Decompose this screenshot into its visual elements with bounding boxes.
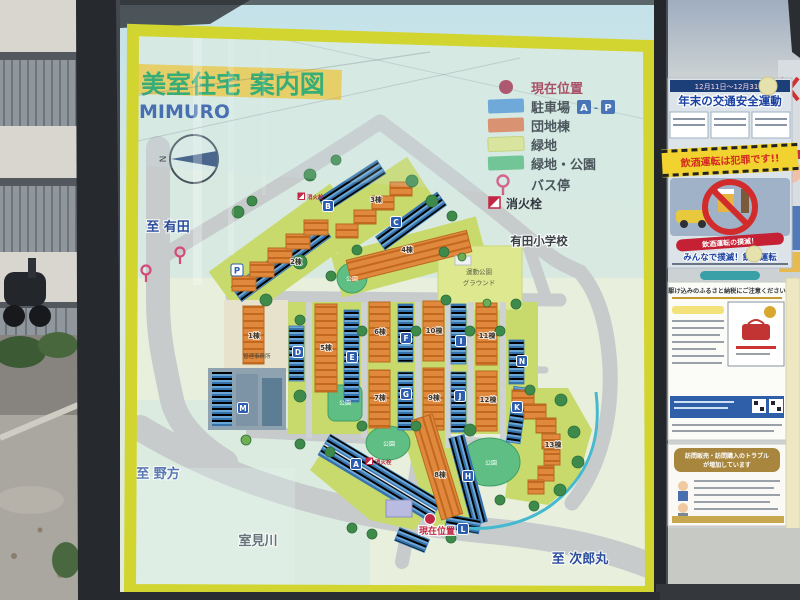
badge-c: C xyxy=(391,217,402,228)
building-1-label: 1棟 xyxy=(248,331,261,340)
poster-dates: 12月11日〜12月31日 xyxy=(695,83,766,91)
poster-title: 年末の交通安全運動 xyxy=(678,94,782,108)
frame-bottom xyxy=(120,592,660,600)
svg-text:消火栓: 消火栓 xyxy=(375,458,392,466)
balcony-row xyxy=(0,178,78,252)
badge-m: M xyxy=(238,403,249,414)
panel-mullion xyxy=(654,0,668,600)
svg-text:D: D xyxy=(295,348,301,357)
balcony-row xyxy=(0,52,78,126)
badge-d: D xyxy=(293,347,304,358)
svg-text:グラウンド: グラウンド xyxy=(463,278,496,287)
svg-text:H: H xyxy=(465,472,471,481)
round-magnet xyxy=(746,246,762,262)
badge-f: F xyxy=(401,333,412,344)
svg-text:訪問販売・訪問購入のトラブル: 訪問販売・訪問購入のトラブル xyxy=(685,452,769,460)
compass-n: N xyxy=(159,156,169,163)
map-panel: A B C D E F G H I J K L M N P 消火栓 xyxy=(120,0,665,600)
svg-text:が増加しています: が増加しています xyxy=(703,461,751,469)
svg-text:現在位置: 現在位置 xyxy=(419,525,455,537)
poster-panel: 12月11日〜12月31日 年末の交通安全運動 飲酒運転は犯罪です!! xyxy=(661,0,800,600)
svg-text:消火栓: 消火栓 xyxy=(506,196,542,211)
map-subtitle: MIMURO xyxy=(139,101,230,123)
legend-hydrant: 消火栓 xyxy=(489,196,542,211)
flyer-pill xyxy=(700,271,760,280)
muromi-river-label: 室見川 xyxy=(238,533,277,549)
badge-e: E xyxy=(347,352,358,363)
svg-text:E: E xyxy=(349,353,354,362)
badge-g: G xyxy=(401,389,412,400)
svg-text:運動公園: 運動公園 xyxy=(466,267,492,276)
parking-p-icon: P xyxy=(231,264,243,277)
building-11-label: 11棟 xyxy=(479,331,497,340)
svg-text:L: L xyxy=(461,525,466,534)
building-5-label: 5棟 xyxy=(320,343,333,352)
to-jiromaru-label: 至 次郎丸 xyxy=(552,551,610,567)
traffic-safety-poster: 12月11日〜12月31日 年末の交通安全運動 飲酒運転は犯罪です!! xyxy=(661,78,798,268)
svg-text:P: P xyxy=(234,267,240,277)
building-3-label: 3棟 xyxy=(370,195,383,204)
building-10-label: 10棟 xyxy=(426,326,444,335)
building-4-label: 4棟 xyxy=(401,245,414,254)
svg-text:N: N xyxy=(519,357,525,366)
parking-lot-m xyxy=(208,368,286,430)
qr-banner xyxy=(670,396,784,418)
svg-text:M: M xyxy=(239,404,246,413)
svg-text:A: A xyxy=(353,460,359,469)
badge-i: I xyxy=(456,336,467,347)
svg-text:J: J xyxy=(458,392,462,401)
svg-text:F: F xyxy=(403,334,408,343)
building-12-label: 12棟 xyxy=(480,395,498,404)
badge-k: K xyxy=(512,402,523,413)
current-location-dot xyxy=(499,80,513,94)
building-13-label: 13棟 xyxy=(545,440,563,449)
poster-info-boxes xyxy=(670,112,790,138)
svg-text:公園: 公園 xyxy=(346,276,358,283)
building-2-label: 2棟 xyxy=(290,257,303,266)
building-6-label: 6棟 xyxy=(374,327,387,336)
building-9-label: 9棟 xyxy=(428,393,441,402)
svg-text:緑地・公園: 緑地・公園 xyxy=(531,157,596,173)
map-title: 美室住宅 案内図 xyxy=(141,70,325,99)
svg-text:公園: 公園 xyxy=(485,460,497,467)
svg-text:公園: 公園 xyxy=(339,400,351,407)
svg-text:バス停: バス停 xyxy=(531,178,570,194)
svg-text:団地棟: 団地棟 xyxy=(531,119,571,135)
svg-text:消火栓: 消火栓 xyxy=(307,193,324,201)
to-nokata-label: 至 野方 xyxy=(136,466,180,482)
badge-j: J xyxy=(455,391,466,402)
poster-footer: みんなで撲滅！飲酒運転 xyxy=(683,252,777,263)
badge-b: B xyxy=(323,201,334,212)
yellow-flyer-sliver xyxy=(786,278,800,560)
photo-of-housing-map-signboard: A B C D E F G H I J K L M N P 消火栓 xyxy=(0,0,800,600)
badge-a: A xyxy=(351,459,362,470)
svg-text:A: A xyxy=(580,103,588,114)
background-apartment-building xyxy=(0,0,80,600)
badge-n: N xyxy=(517,356,528,367)
sales-trouble-flyer: 訪問販売・訪問購入のトラブル が増加しています xyxy=(668,444,786,526)
svg-text:I: I xyxy=(460,337,463,346)
svg-text:現在位置: 現在位置 xyxy=(531,81,583,97)
svg-text:緑地: 緑地 xyxy=(531,138,557,154)
svg-text:-: - xyxy=(594,103,598,114)
wall-panel xyxy=(668,528,800,586)
badge-h: H xyxy=(463,471,474,482)
frame-bottom-right xyxy=(656,584,800,600)
furusato-title: 駆け込みのふるさと納税にご注意ください xyxy=(668,287,785,295)
building-8-label: 8棟 xyxy=(434,470,447,479)
svg-text:G: G xyxy=(403,390,409,399)
to-arita-label: 至 有田 xyxy=(146,219,190,235)
school-label: 有田小学校 xyxy=(510,234,568,248)
svg-text:B: B xyxy=(325,202,331,211)
svg-text:C: C xyxy=(393,218,399,227)
badge-l: L xyxy=(458,524,469,535)
svg-text:公園: 公園 xyxy=(383,441,395,448)
round-magnet xyxy=(759,77,777,95)
entrance-building xyxy=(386,500,412,517)
no-drunk-driving-illustration xyxy=(670,178,790,236)
scene: A B C D E F G H I J K L M N P 消火栓 xyxy=(0,0,800,600)
hydrant-marker: 消火栓 xyxy=(298,193,324,201)
flyer-product-box xyxy=(728,302,784,366)
office-label: 管理事務所 xyxy=(243,352,271,360)
hydrant-marker: 消火栓 xyxy=(366,458,392,466)
furusato-flyer: 駆け込みのふるさと納税にご注意ください xyxy=(668,271,786,440)
building-7-label: 7棟 xyxy=(374,393,387,402)
svg-text:駐車場: 駐車場 xyxy=(531,100,570,116)
svg-text:P: P xyxy=(604,103,611,114)
